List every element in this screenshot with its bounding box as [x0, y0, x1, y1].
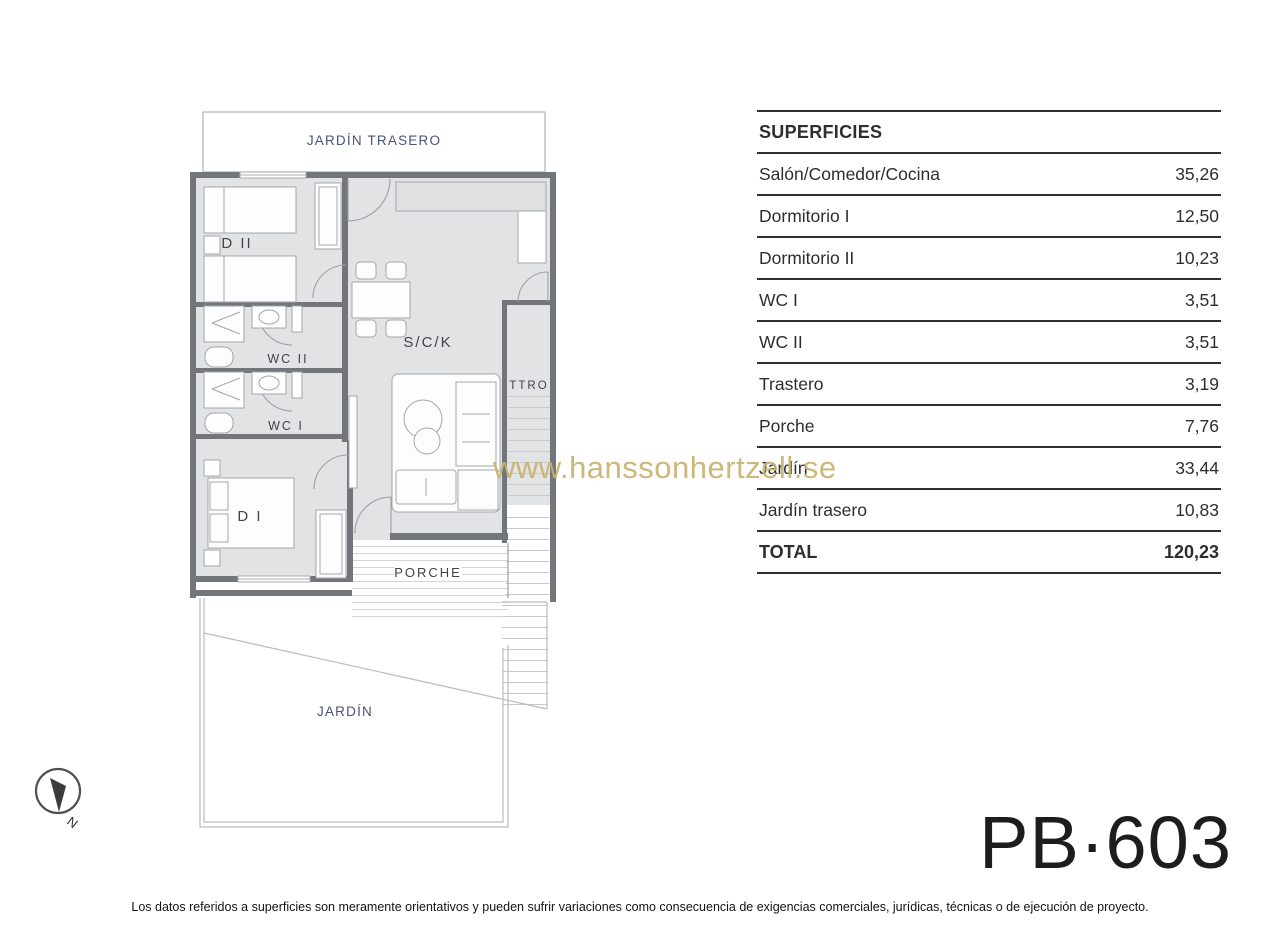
row-label: Jardín trasero: [759, 490, 867, 530]
row-label: Trastero: [759, 364, 824, 404]
room-label-d2: D II: [221, 235, 252, 252]
row-value: 33,44: [1175, 448, 1219, 488]
row-value: 3,19: [1185, 364, 1219, 404]
row-value: 3,51: [1185, 322, 1219, 362]
table-row: Trastero 3,19: [757, 362, 1221, 404]
table-row: Dormitorio I 12,50: [757, 194, 1221, 236]
room-label-wc2: WC II: [267, 352, 308, 366]
surfaces-table-title: SUPERFICIES: [757, 110, 1221, 152]
table-total-row: TOTAL 120,23: [757, 530, 1221, 574]
stairs-hatch: [506, 508, 549, 598]
jardin-label: JARDÍN: [317, 704, 373, 719]
room-label-d1: D I: [237, 508, 262, 525]
row-value: 3,51: [1185, 280, 1219, 320]
jardin-boundary: [200, 598, 547, 827]
row-value: 10,83: [1175, 490, 1219, 530]
ramp-hatch: [502, 602, 548, 708]
north-compass-icon: N: [36, 769, 81, 831]
floorplan-page: JARDÍN TRASERO D II WC II WC I D I S/C/K…: [0, 0, 1280, 933]
room-label-ttro: TTRO: [509, 380, 548, 392]
row-label: Porche: [759, 406, 814, 446]
table-row: Porche 7,76: [757, 404, 1221, 446]
compass-n-label: N: [64, 814, 81, 832]
total-value: 120,23: [1164, 532, 1219, 572]
table-row: Dormitorio II 10,23: [757, 236, 1221, 278]
room-label-porche: PORCHE: [394, 565, 462, 580]
room-label-wc1: WC I: [268, 419, 304, 433]
row-label: WC II: [759, 322, 803, 362]
row-value: 35,26: [1175, 154, 1219, 194]
row-label: Salón/Comedor/Cocina: [759, 154, 940, 194]
table-row: Salón/Comedor/Cocina 35,26: [757, 152, 1221, 194]
table-row: WC I 3,51: [757, 278, 1221, 320]
room-label-sck: S/C/K: [403, 334, 452, 351]
table-row: Jardín trasero 10,83: [757, 488, 1221, 530]
disclaimer-text: Los datos referidos a superficies son me…: [0, 900, 1280, 914]
porche-hatch: [352, 542, 508, 622]
row-value: 12,50: [1175, 196, 1219, 236]
surfaces-table: SUPERFICIES Salón/Comedor/Cocina 35,26 D…: [757, 110, 1221, 574]
row-label: WC I: [759, 280, 798, 320]
row-label: Dormitorio II: [759, 238, 854, 278]
row-label: Dormitorio I: [759, 196, 849, 236]
row-value: 10,23: [1175, 238, 1219, 278]
table-row: WC II 3,51: [757, 320, 1221, 362]
watermark: www.hanssonhertzell.se: [493, 450, 837, 486]
plan-code: PB·603: [979, 800, 1232, 885]
row-value: 7,76: [1185, 406, 1219, 446]
total-label: TOTAL: [759, 532, 817, 572]
jardin-trasero-label: JARDÍN TRASERO: [307, 133, 441, 148]
